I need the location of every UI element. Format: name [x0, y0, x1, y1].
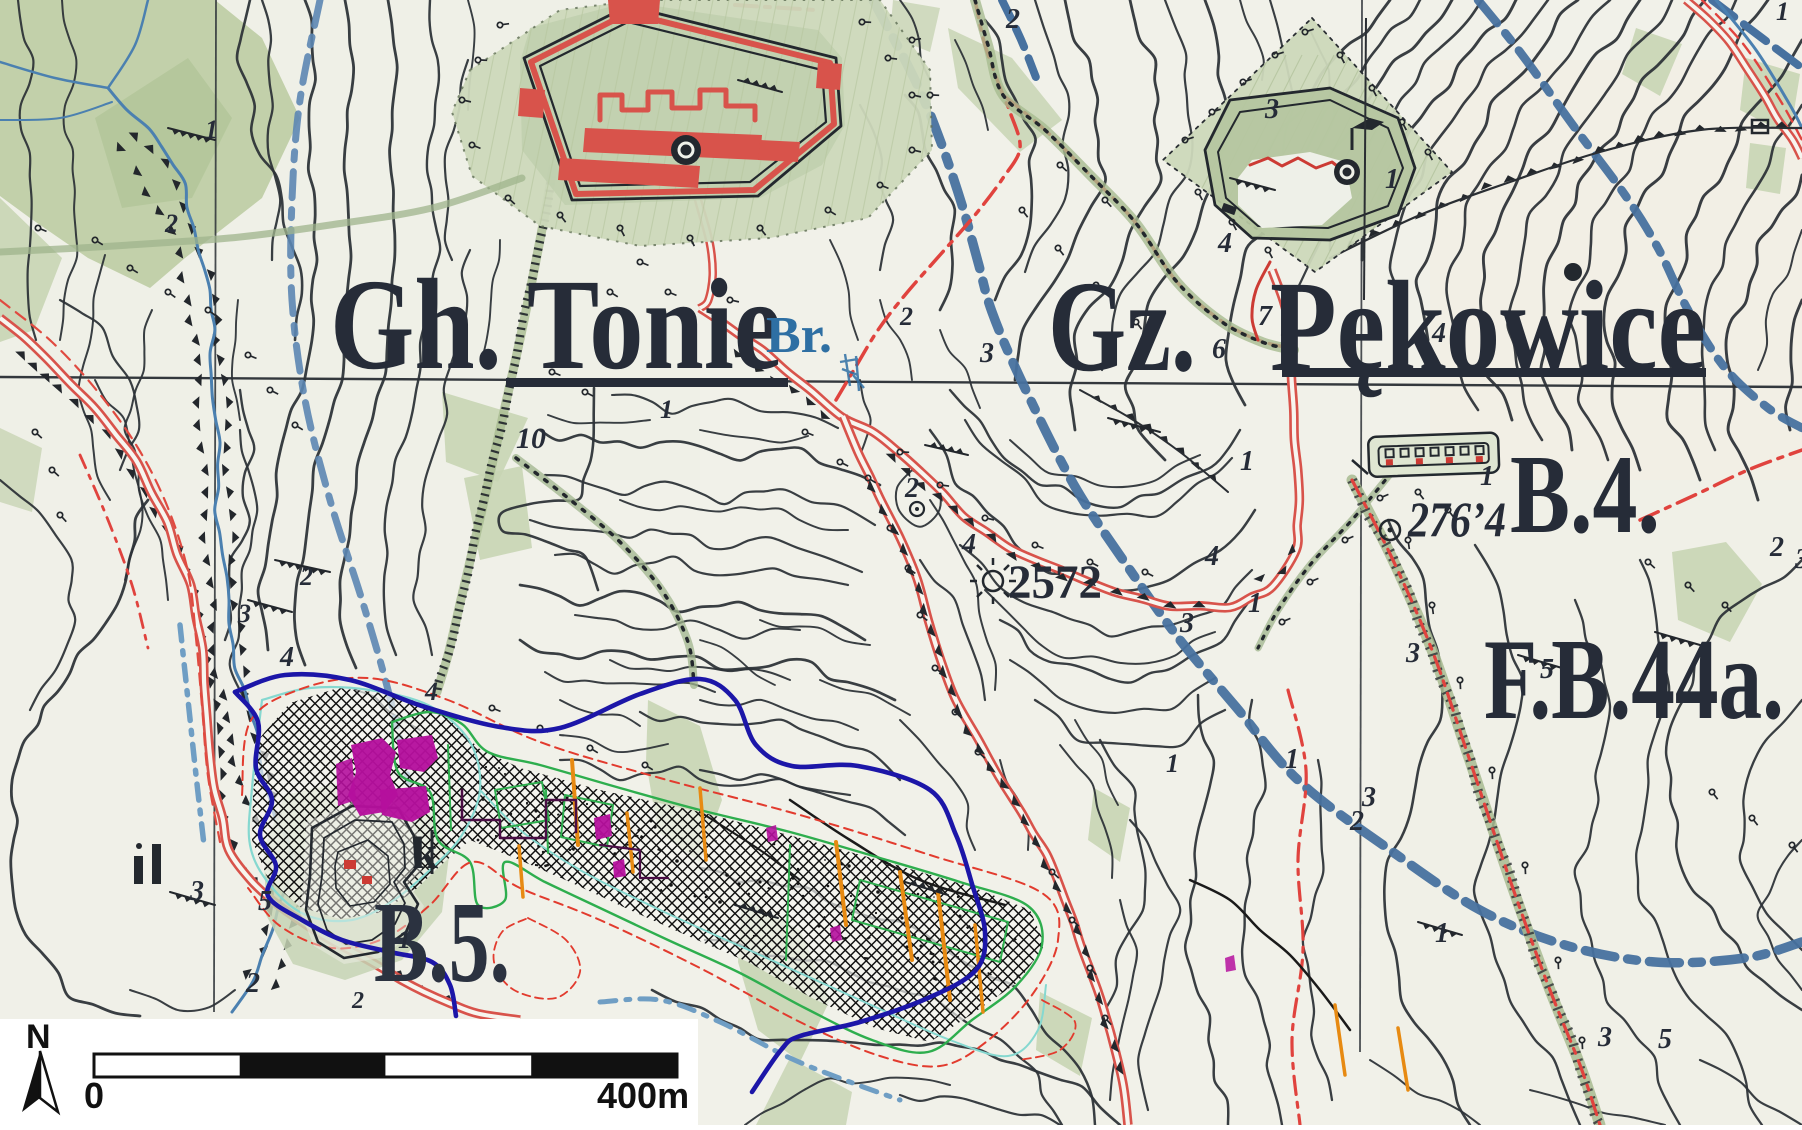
svg-text:1: 1 — [1240, 446, 1254, 477]
svg-text:k: k — [412, 827, 438, 878]
svg-text:B.5.: B.5. — [374, 879, 510, 1006]
svg-text:2: 2 — [351, 988, 364, 1014]
svg-text:1: 1 — [1480, 461, 1494, 492]
svg-text:1: 1 — [1285, 744, 1299, 775]
svg-text:3: 3 — [979, 338, 994, 369]
svg-text:3: 3 — [237, 599, 251, 628]
svg-text:5: 5 — [258, 886, 272, 917]
svg-text:2: 2 — [164, 209, 178, 238]
svg-text:3: 3 — [1597, 1022, 1612, 1053]
svg-text:3: 3 — [1794, 544, 1802, 575]
svg-text:2: 2 — [904, 473, 919, 504]
svg-text:1: 1 — [660, 395, 673, 424]
svg-text:5: 5 — [1540, 654, 1554, 685]
svg-text:2: 2 — [899, 302, 913, 331]
svg-text:3: 3 — [189, 876, 204, 907]
svg-text:1: 1 — [1166, 749, 1179, 778]
svg-text:1: 1 — [1248, 588, 1262, 619]
svg-text:1: 1 — [1385, 164, 1399, 195]
svg-text:0: 0 — [84, 1075, 104, 1116]
svg-text:Gh. Tonie: Gh. Tonie — [330, 253, 782, 397]
svg-text:2: 2 — [1005, 4, 1020, 35]
svg-text:400m: 400m — [597, 1075, 689, 1116]
svg-text:1: 1 — [205, 115, 218, 144]
svg-text:10: 10 — [516, 422, 546, 455]
svg-text:6: 6 — [1212, 334, 1226, 365]
svg-text:4: 4 — [1204, 541, 1219, 572]
svg-text:1: 1 — [1435, 918, 1449, 949]
svg-text:2: 2 — [299, 562, 313, 591]
svg-text:N: N — [26, 1018, 51, 1056]
svg-text:3: 3 — [1264, 94, 1279, 125]
svg-text:Pękowice: Pękowice — [1270, 255, 1706, 399]
svg-text:7: 7 — [1258, 301, 1273, 332]
svg-text:1: 1 — [1776, 0, 1789, 26]
svg-text:276’4: 276’4 — [1407, 491, 1506, 547]
svg-text:Gz.: Gz. — [1048, 255, 1196, 399]
svg-text:4: 4 — [1217, 228, 1232, 259]
svg-text:3: 3 — [1361, 782, 1376, 813]
svg-text:Br.: Br. — [766, 307, 832, 364]
svg-text:2: 2 — [1769, 532, 1784, 563]
svg-text:3: 3 — [1179, 608, 1194, 639]
svg-text:4: 4 — [961, 529, 976, 560]
svg-text:1: 1 — [398, 925, 411, 954]
svg-text:3: 3 — [1405, 638, 1420, 669]
svg-text:B.4.: B.4. — [1510, 433, 1660, 557]
svg-text:4: 4 — [424, 677, 438, 706]
svg-text:5: 5 — [1658, 1024, 1672, 1055]
svg-text:4: 4 — [279, 642, 294, 673]
svg-text:2572: 2572 — [1008, 556, 1102, 609]
svg-text:2: 2 — [245, 968, 260, 999]
svg-text:4: 4 — [1431, 318, 1446, 349]
svg-text:F.B.44a.: F.B.44a. — [1484, 616, 1784, 744]
